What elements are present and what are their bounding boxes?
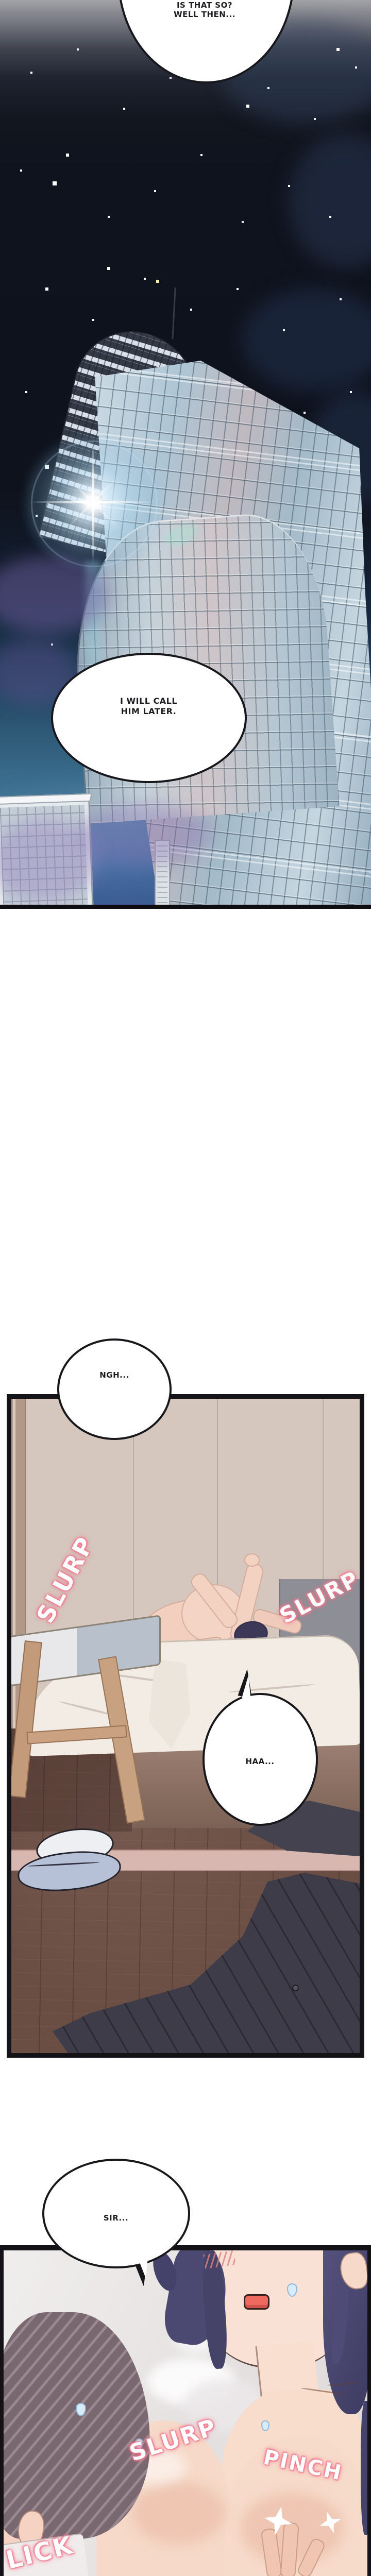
panel-bottom-border — [0, 905, 371, 909]
speech-text: SIR... — [85, 2213, 147, 2223]
panel-bedroom: SLURP SLURP — [7, 1394, 364, 2058]
speech-text: NGH... — [82, 1370, 147, 1380]
speech-line: I WILL CALL — [106, 696, 191, 706]
comic-page: IS THAT SO? WELL THEN... I WILL CALL HIM… — [0, 0, 371, 2576]
sfx-slurp-left: SLURP — [31, 1532, 99, 1628]
speech-text: IS THAT SO? WELL THEN... — [166, 1, 243, 19]
panel-closeup: SLURP PINCH LICK — [0, 2245, 371, 2576]
speech-line: HIM LATER. — [106, 706, 191, 717]
speech-bubble-ngh — [57, 1338, 172, 1440]
open-mouth — [244, 2294, 269, 2310]
skin-shading — [132, 2482, 225, 2544]
speech-line: WELL THEN... — [166, 10, 243, 19]
speech-bubble-call — [51, 653, 247, 783]
woman-hair-long — [361, 2401, 371, 2535]
figure-foot — [244, 1553, 260, 1567]
speech-line: IS THAT SO? — [166, 1, 243, 10]
wall-seam — [323, 1399, 324, 1595]
man-hair — [0, 2312, 150, 2539]
star-field — [0, 0, 1, 1]
speech-text: I WILL CALL HIM LATER. — [106, 696, 191, 717]
speech-text: HAA... — [229, 1757, 291, 1766]
